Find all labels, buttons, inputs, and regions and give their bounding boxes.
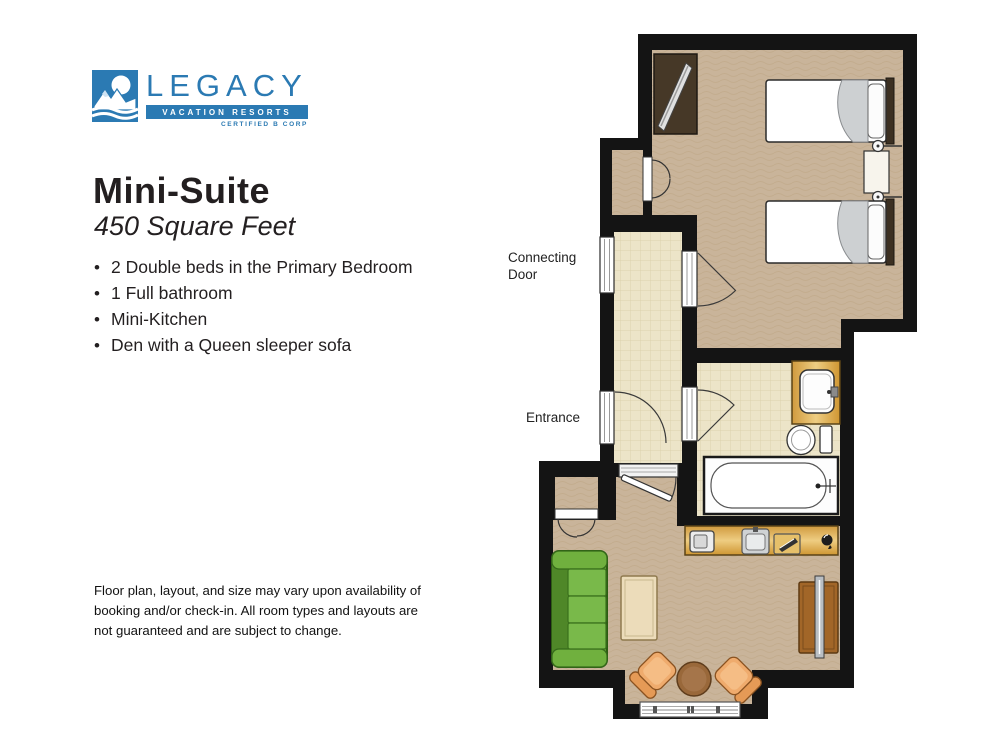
- bedroom-tv-stand: [654, 54, 697, 134]
- sleeper-sofa: [552, 551, 607, 667]
- feature-list: • 2 Double beds in the Primary Bedroom •…: [94, 258, 413, 362]
- microwave-icon: [690, 531, 714, 552]
- feature-item: • Mini-Kitchen: [94, 310, 413, 329]
- feature-text: 1 Full bathroom: [111, 284, 233, 302]
- feature-text: Den with a Queen sleeper sofa: [111, 336, 351, 354]
- disclaimer-text: Floor plan, layout, and size may vary up…: [94, 581, 436, 640]
- legacy-logo: LEGACY VACATION RESORTS CERTIFIED B CORP: [92, 70, 308, 128]
- logo-certification: CERTIFIED B CORP: [146, 121, 308, 128]
- den-tv-stand: [799, 576, 838, 658]
- connecting-door: [600, 237, 614, 293]
- bed-1: [766, 78, 894, 144]
- round-table: [677, 662, 711, 696]
- logo-tagline: VACATION RESORTS: [162, 108, 291, 117]
- bullet-icon: •: [94, 259, 111, 277]
- feature-item: • Den with a Queen sleeper sofa: [94, 336, 413, 355]
- logo-tagline-bar: VACATION RESORTS: [146, 105, 308, 119]
- bay-window: [640, 702, 740, 717]
- bed-2: [766, 199, 894, 265]
- coffee-table: [621, 576, 657, 640]
- entrance-label: Entrance: [526, 409, 580, 426]
- feature-text: Mini-Kitchen: [111, 310, 207, 328]
- kitchenette-counter: [685, 526, 838, 555]
- toilet: [787, 426, 832, 455]
- bullet-icon: •: [94, 285, 111, 303]
- hallway-floor: [614, 232, 682, 463]
- feature-text: 2 Double beds in the Primary Bedroom: [111, 258, 413, 276]
- bullet-icon: •: [94, 337, 111, 355]
- suite-subtitle: 450 Square Feet: [94, 211, 295, 242]
- vanity: [792, 361, 840, 424]
- sink-icon: [742, 527, 769, 554]
- stove-icon: [774, 534, 800, 554]
- bullet-icon: •: [94, 311, 111, 329]
- bathtub: [704, 457, 838, 514]
- bedroom-closet-floor: [612, 150, 643, 215]
- den-closet-floor: [555, 477, 598, 510]
- feature-item: • 2 Double beds in the Primary Bedroom: [94, 258, 413, 277]
- feature-item: • 1 Full bathroom: [94, 284, 413, 303]
- connecting-door-label: Connecting Door: [508, 249, 596, 284]
- legacy-logo-icon: [92, 70, 138, 122]
- logo-brand: LEGACY: [146, 70, 308, 101]
- suite-title: Mini-Suite: [93, 170, 270, 212]
